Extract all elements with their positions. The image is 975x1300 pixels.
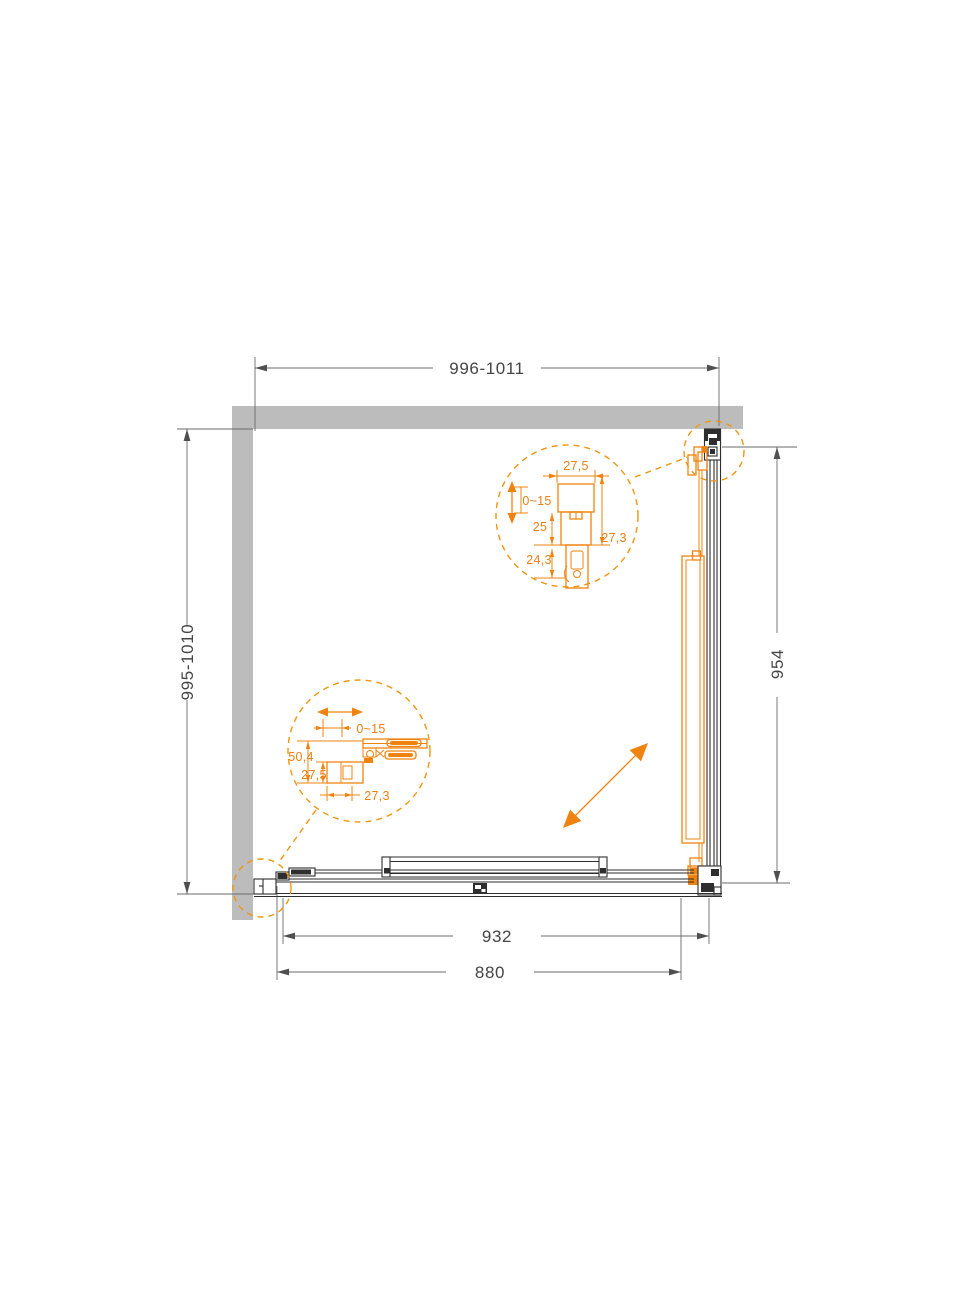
- wall-top: [232, 406, 743, 429]
- technical-drawing: 996-1011 995-1010 954 932: [0, 0, 975, 1300]
- detail-bottom-adjust-label: 0~15: [356, 722, 385, 736]
- detail-bottom-depth-label: 27,3: [364, 789, 390, 803]
- dimension-right-height: 954: [722, 447, 797, 883]
- dim-right-label: 954: [768, 649, 787, 679]
- door-center-guide: [473, 883, 487, 894]
- roller-bracket-top-right: [688, 446, 707, 556]
- dim-top-label: 996-1011: [449, 359, 524, 378]
- wall-left: [232, 406, 253, 920]
- drawing-page: 996-1011 995-1010 954 932: [0, 0, 975, 1300]
- detail-top-adjust-label: 0~15: [522, 494, 551, 508]
- leader-bottom: [279, 810, 316, 862]
- detail-bottom-width-label: 27,5: [301, 768, 327, 782]
- detail-bottom-section: 0~15 50,4 27,5 27,3: [288, 708, 427, 804]
- wall-profile-bottom-left: [254, 868, 315, 894]
- sliding-door-right: [682, 551, 704, 843]
- detail-top-243-label: 24,3: [526, 553, 552, 567]
- detail-top-25-label: 25: [533, 520, 548, 534]
- corner-profile-bottom-right: [698, 866, 721, 895]
- dim-932-label: 932: [482, 927, 512, 946]
- detail-top-depth-label: 27,3: [601, 531, 627, 545]
- fixed-panel-right: [707, 429, 721, 893]
- slide-direction-arrow: [563, 743, 648, 828]
- walls: [232, 406, 743, 920]
- detail-top-width-label: 27,5: [563, 459, 589, 473]
- dim-880-label: 880: [475, 963, 505, 982]
- detail-top-section: 27,5 0~15 25 24,3 27,3: [508, 459, 627, 588]
- sliding-door-bottom: [382, 857, 607, 877]
- dim-left-label: 995-1010: [178, 624, 197, 701]
- leader-top: [635, 457, 688, 477]
- dimension-bottom-inner: 932: [283, 898, 709, 946]
- detail-bottom-height-label: 50,4: [288, 750, 314, 764]
- dimension-bottom-door: 880: [277, 886, 681, 982]
